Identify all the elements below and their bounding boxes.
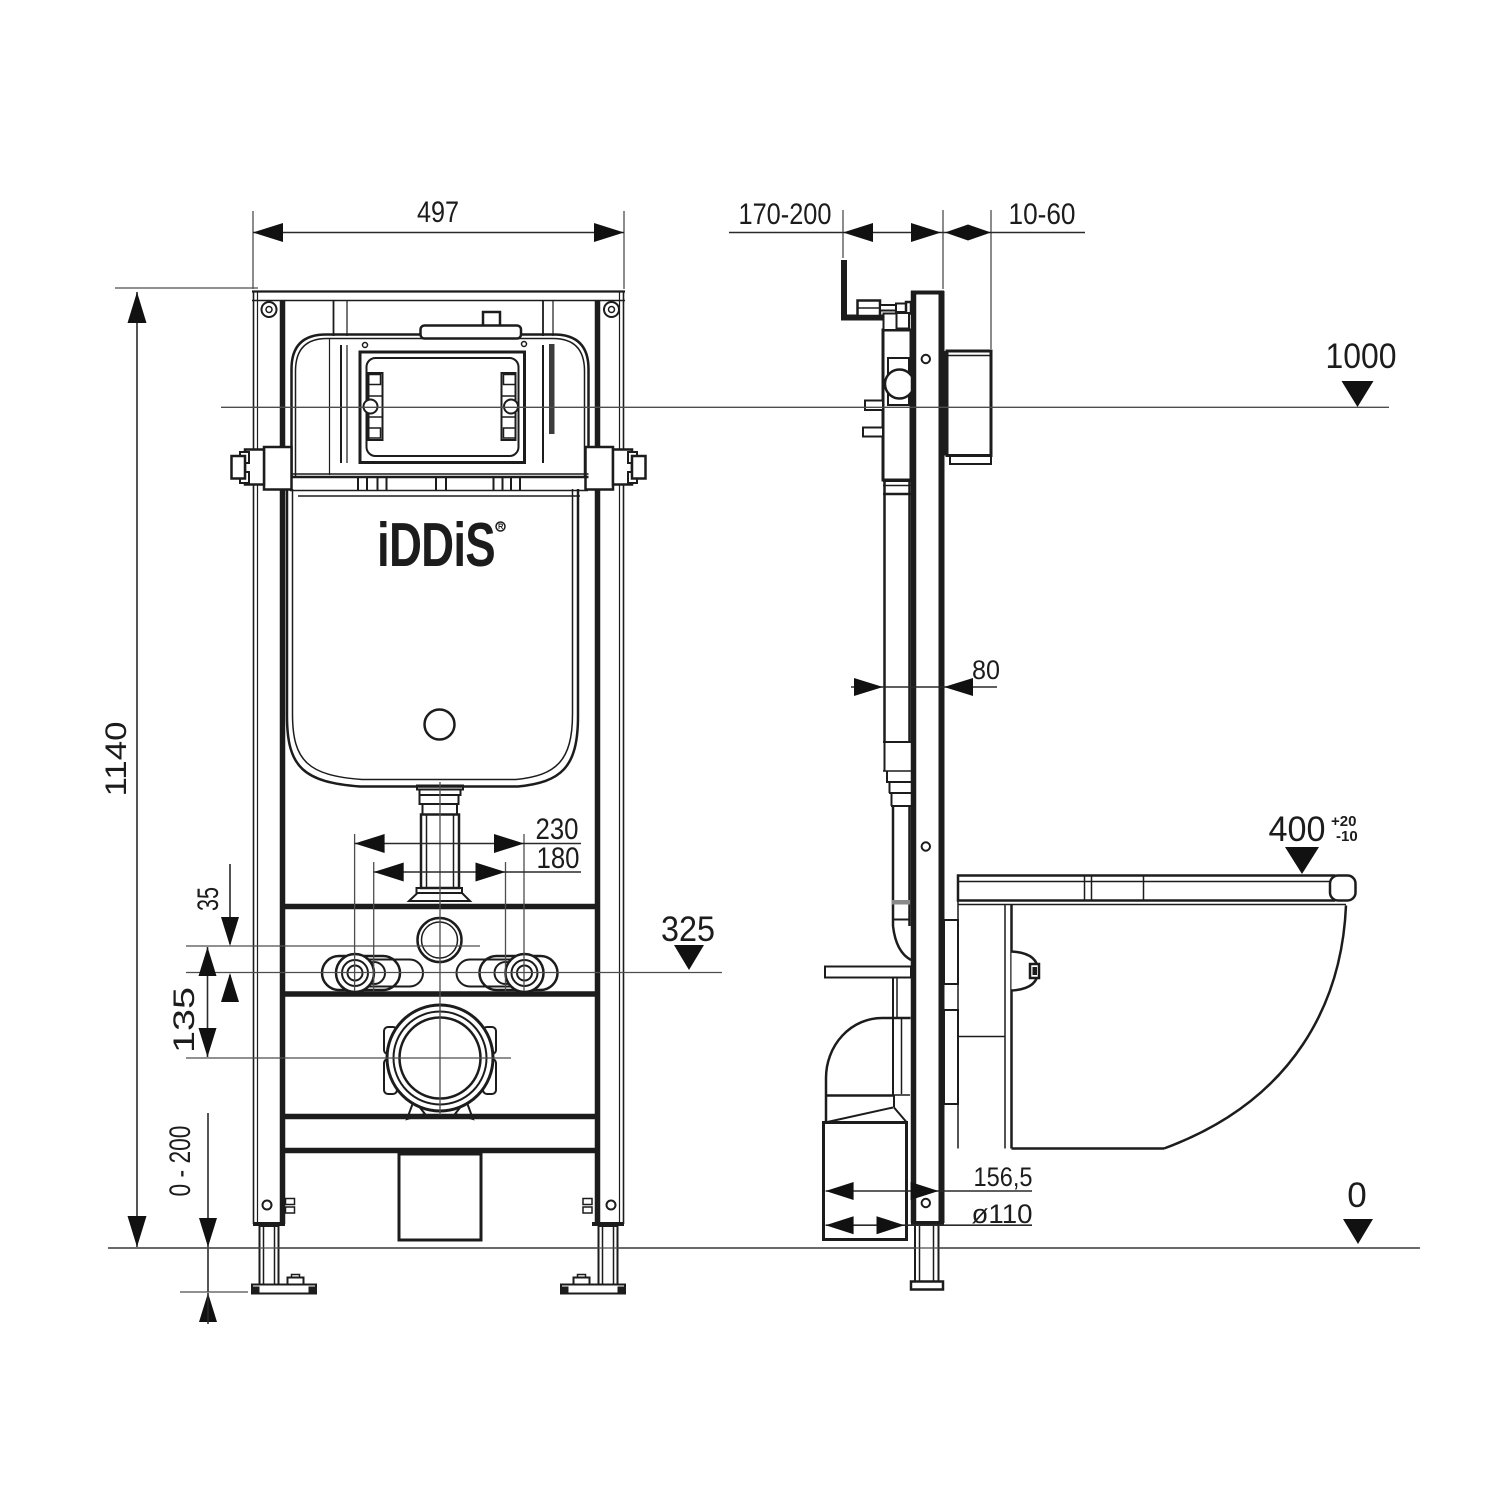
- svg-text:0: 0: [1347, 1176, 1366, 1215]
- svg-text:ø110: ø110: [972, 1199, 1033, 1229]
- svg-text:80: 80: [972, 655, 1000, 685]
- svg-text:325: 325: [661, 910, 715, 949]
- svg-text:180: 180: [537, 842, 580, 875]
- svg-text:1140: 1140: [100, 722, 133, 797]
- svg-text:1000: 1000: [1326, 337, 1397, 376]
- svg-text:iDDiS: iDDiS: [377, 511, 495, 580]
- svg-text:-10: -10: [1336, 828, 1358, 845]
- svg-text:35: 35: [192, 887, 225, 911]
- svg-text:135: 135: [168, 987, 201, 1053]
- svg-text:0 - 200: 0 - 200: [164, 1126, 197, 1197]
- svg-text:10-60: 10-60: [1009, 198, 1076, 231]
- svg-text:497: 497: [417, 196, 459, 229]
- svg-text:156,5: 156,5: [974, 1162, 1033, 1192]
- svg-text:400: 400: [1269, 810, 1326, 849]
- svg-text:170-200: 170-200: [739, 198, 832, 231]
